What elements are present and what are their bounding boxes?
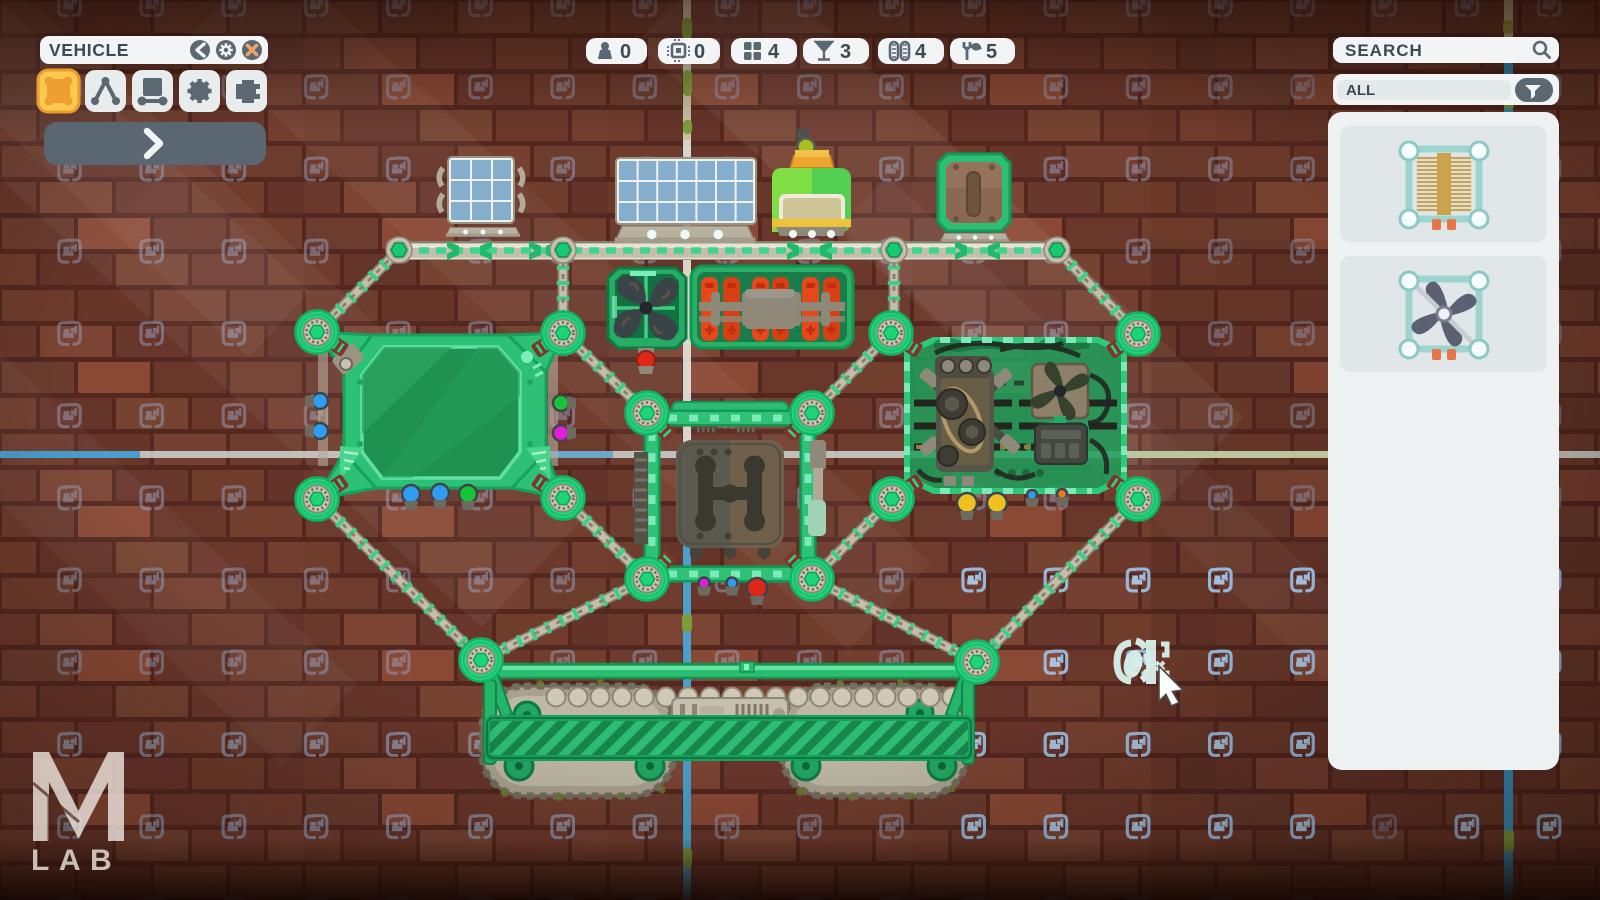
svg-text:LAB: LAB xyxy=(31,844,121,877)
svg-text:0: 0 xyxy=(620,41,631,63)
svg-text:3: 3 xyxy=(840,41,851,63)
svg-text:VEHICLE: VEHICLE xyxy=(49,40,129,60)
svg-text:4: 4 xyxy=(915,41,927,63)
svg-text:SEARCH: SEARCH xyxy=(1345,41,1423,60)
svg-text:5: 5 xyxy=(986,41,997,63)
svg-text:ALL: ALL xyxy=(1346,82,1375,99)
svg-text:4: 4 xyxy=(768,41,780,63)
svg-text:0: 0 xyxy=(694,41,705,63)
